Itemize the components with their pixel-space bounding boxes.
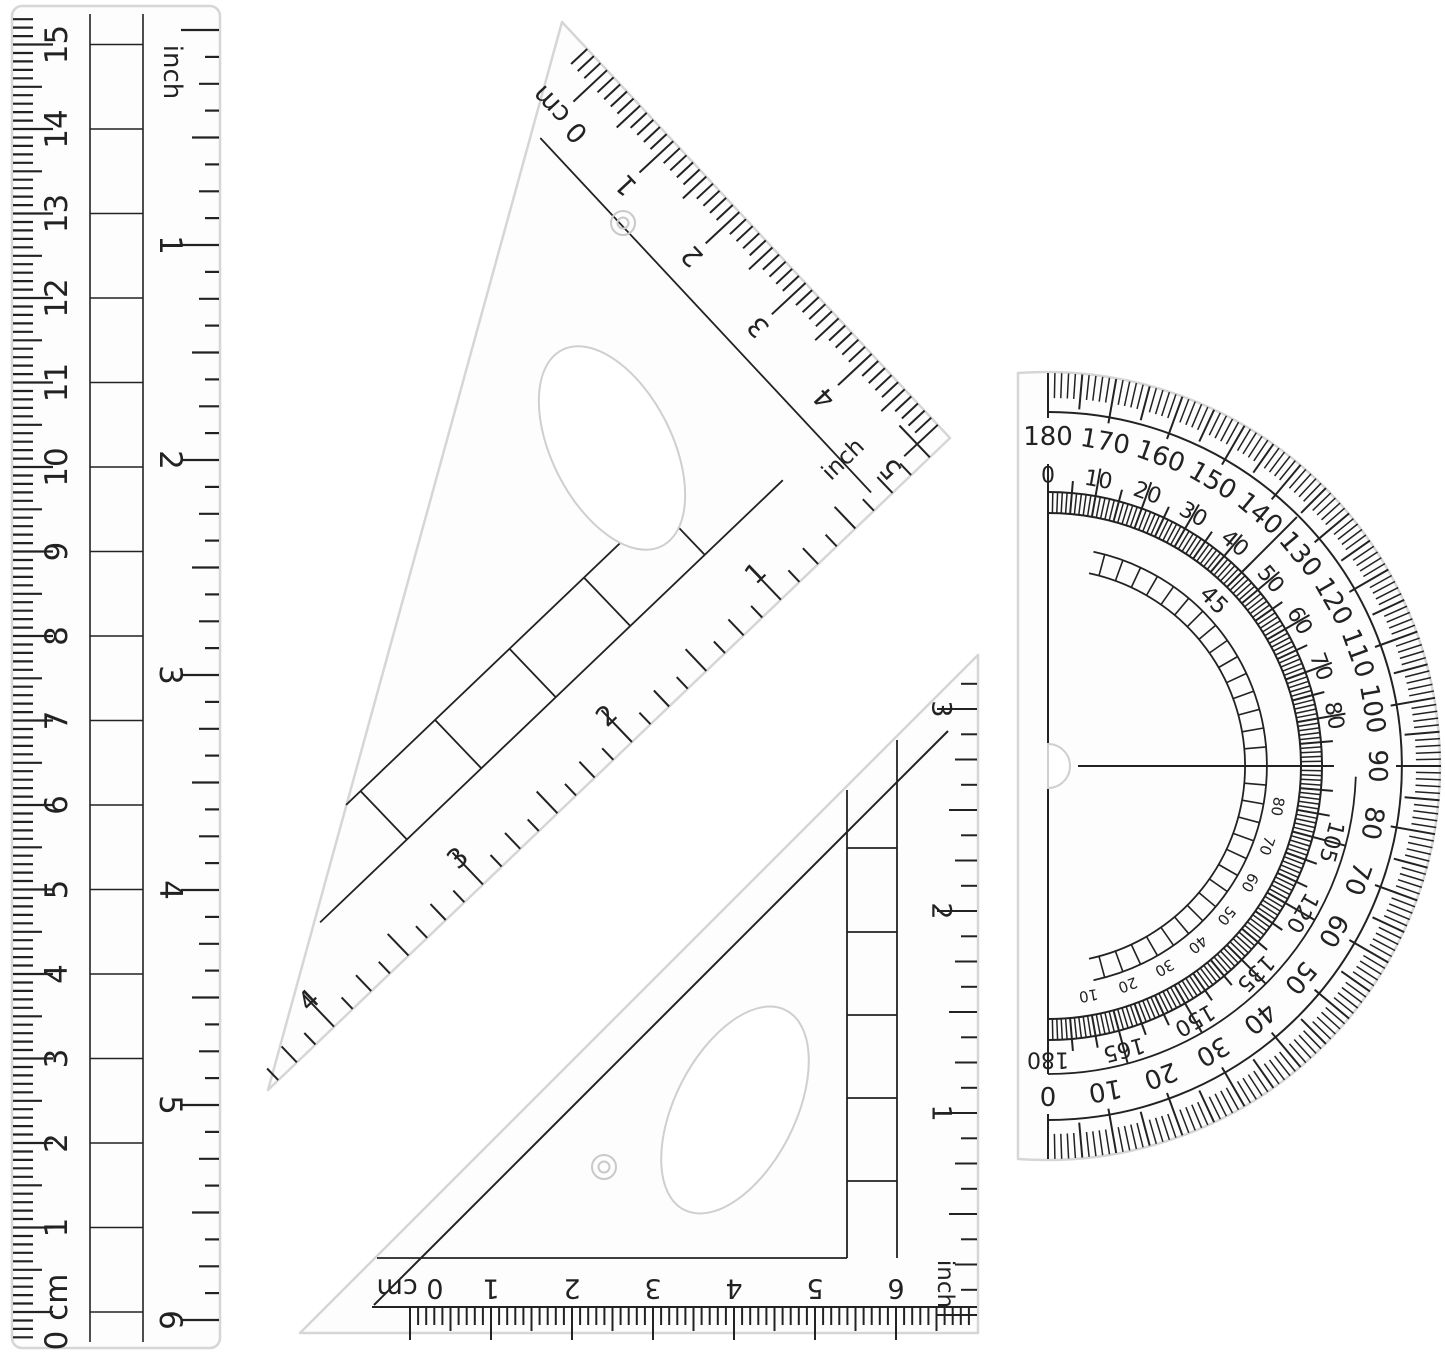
scale-number: 3 — [39, 1049, 75, 1069]
scale-number: 4 — [39, 964, 75, 984]
scale-number: 2 — [152, 450, 188, 470]
scale-number: 5 — [39, 880, 75, 900]
scale-number: 80 — [1267, 796, 1288, 818]
scale-number: 14 — [39, 109, 75, 148]
scale-number: 11 — [39, 363, 75, 402]
scale-number: 10 — [1082, 466, 1114, 495]
scale-number: 1 — [152, 235, 188, 255]
scale-number: 2 — [39, 1133, 75, 1153]
scale-number: 0 — [1040, 1080, 1057, 1110]
scale-number: 15 — [39, 25, 75, 64]
scale-number: 10 — [1078, 985, 1100, 1006]
square45-inch-unit-label: inch — [932, 1260, 958, 1308]
scale-number: 180 — [1023, 422, 1073, 452]
scale-number: 90 — [1362, 749, 1392, 782]
scale-number: 6 — [39, 795, 75, 815]
scale-number: 1 — [482, 1273, 499, 1304]
geometry-set-canvas: 0 cm123456789101112131415123456inch0 cm1… — [0, 0, 1445, 1355]
scale-number: 7 — [39, 711, 75, 731]
scale-number: 0 cm — [39, 1274, 75, 1351]
scale-number: 6 — [152, 1310, 188, 1330]
scale-number: 8 — [39, 626, 75, 646]
scale-number: 80 — [1319, 700, 1348, 732]
ruler-inch-unit-label: inch — [157, 45, 187, 99]
scale-number: 0 cm — [377, 1273, 444, 1304]
scale-number: 10 — [1086, 1072, 1124, 1107]
scale-number: 9 — [39, 542, 75, 562]
scale-number: 3 — [926, 700, 957, 717]
scale-number: 5 — [152, 1095, 188, 1115]
scale-number: 1 — [926, 1104, 957, 1121]
scale-number: 6 — [887, 1273, 904, 1304]
scale-number: 12 — [39, 278, 75, 317]
scale-number: 3 — [644, 1273, 661, 1304]
scale-number: 2 — [926, 902, 957, 919]
geometry-set-photo: 0 cm123456789101112131415123456inch0 cm1… — [0, 0, 1445, 1355]
protractor: 1801701601501401301201101009080706050403… — [1018, 372, 1441, 1160]
scale-number: 3 — [152, 665, 188, 685]
scale-number: 4 — [725, 1273, 742, 1304]
scale-number: 4 — [152, 880, 188, 900]
scale-number: 10 — [39, 447, 75, 486]
scale-number: 80 — [1354, 804, 1389, 842]
scale-number: 13 — [39, 194, 75, 233]
scale-number: 5 — [806, 1273, 823, 1304]
scale-number: 1 — [39, 1218, 75, 1238]
ruler: 0 cm123456789101112131415123456inch — [12, 6, 220, 1350]
scale-number: 2 — [563, 1273, 580, 1304]
